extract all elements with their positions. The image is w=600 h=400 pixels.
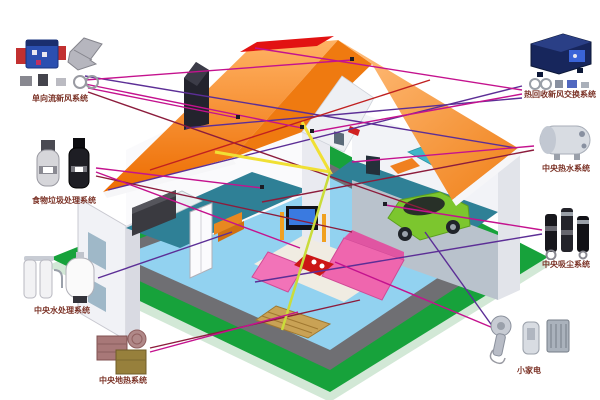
hot-water-tank-icon bbox=[534, 120, 598, 164]
floor-heating-tiles-icon bbox=[92, 328, 154, 376]
diagram-canvas: 单向流新风系统 食物垃圾处理系统 中央水处理系统 bbox=[0, 0, 600, 400]
system-heat-recovery: 热回收新风交换系统 bbox=[522, 30, 598, 99]
system-label-small-appliances: 小家电 bbox=[517, 367, 541, 375]
system-label-water-treatment: 中央水处理系统 bbox=[34, 307, 90, 315]
water-filter-icon bbox=[14, 250, 110, 306]
system-food-waste: 食物垃圾处理系统 bbox=[22, 136, 106, 205]
small-appliances-icon bbox=[485, 310, 573, 366]
central-vacuum-icon bbox=[537, 200, 595, 260]
system-small-appliances: 小家电 bbox=[482, 310, 576, 375]
system-label-central-vacuum: 中央吸尘系统 bbox=[542, 261, 590, 269]
system-central-vacuum: 中央吸尘系统 bbox=[536, 200, 596, 269]
system-hot-water: 中央热水系统 bbox=[534, 120, 598, 173]
system-fresh-air: 单向流新风系统 bbox=[8, 30, 112, 103]
system-label-floor-heating: 中央地热系统 bbox=[99, 377, 147, 385]
fresh-air-unit-icon bbox=[12, 30, 108, 94]
system-label-food-waste: 食物垃圾处理系统 bbox=[32, 197, 96, 205]
system-label-heat-recovery: 热回收新风交换系统 bbox=[524, 91, 596, 99]
heat-recovery-ventilator-icon bbox=[523, 30, 597, 90]
garbage-disposal-icon bbox=[29, 136, 99, 196]
system-label-hot-water: 中央热水系统 bbox=[542, 165, 590, 173]
system-label-fresh-air: 单向流新风系统 bbox=[32, 95, 88, 103]
system-water-treatment: 中央水处理系统 bbox=[12, 250, 112, 315]
system-floor-heating: 中央地热系统 bbox=[88, 328, 158, 385]
